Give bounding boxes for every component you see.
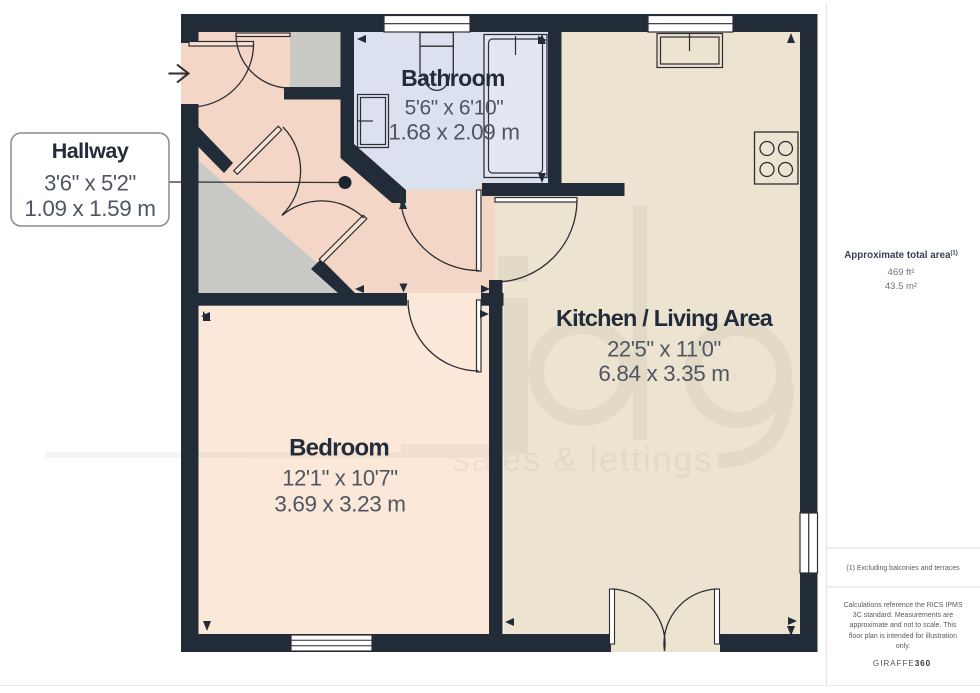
svg-text:Kitchen / Living Area: Kitchen / Living Area	[556, 305, 774, 331]
svg-text:only.: only.	[896, 643, 910, 650]
svg-text:12'1" x 10'7": 12'1" x 10'7"	[282, 466, 397, 491]
svg-text:approximate and not to scale.: approximate and not to scale. This	[850, 622, 957, 629]
svg-text:1.09 x 1.59 m: 1.09 x 1.59 m	[24, 196, 155, 221]
svg-text:(1) Excluding balconies and te: (1) Excluding balconies and terraces	[846, 565, 960, 572]
svg-text:Approximate total area(1): Approximate total area(1)	[844, 250, 958, 261]
svg-text:1.68 x 2.09 m: 1.68 x 2.09 m	[388, 120, 519, 145]
svg-text:5'6" x 6'10": 5'6" x 6'10"	[405, 97, 504, 120]
svg-text:Calculations reference the RIC: Calculations reference the RICS IPMS	[843, 602, 962, 609]
svg-text:6.84 x 3.35 m: 6.84 x 3.35 m	[598, 361, 729, 386]
svg-text:floor plan is intended for ill: floor plan is intended for illustration	[849, 633, 957, 640]
svg-text:469 ft²: 469 ft²	[888, 267, 915, 278]
svg-text:3C standard. Measurements are: 3C standard. Measurements are	[853, 612, 953, 619]
svg-text:3'6" x 5'2": 3'6" x 5'2"	[44, 171, 136, 196]
svg-text:Bathroom: Bathroom	[401, 65, 505, 91]
svg-text:Hallway: Hallway	[52, 139, 129, 163]
svg-text:3.69 x 3.23 m: 3.69 x 3.23 m	[274, 492, 405, 517]
svg-text:22'5" x 11'0": 22'5" x 11'0"	[607, 337, 721, 362]
svg-text:Bedroom: Bedroom	[289, 435, 389, 462]
svg-text:GIRAFFE360: GIRAFFE360	[873, 659, 931, 668]
svg-text:43.5 m²: 43.5 m²	[885, 281, 917, 292]
